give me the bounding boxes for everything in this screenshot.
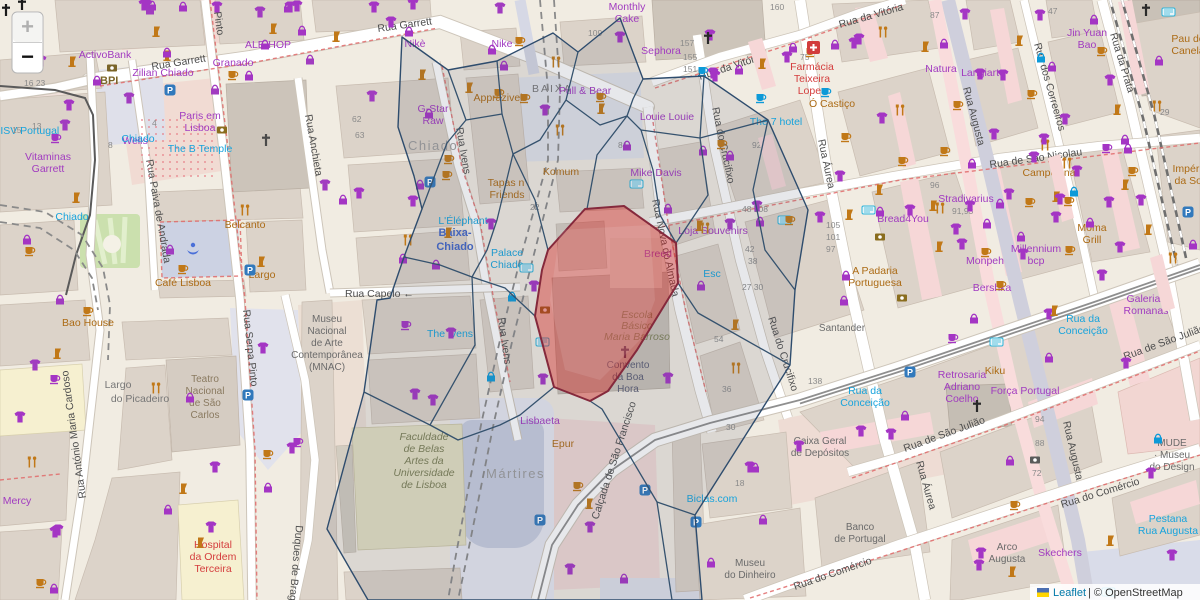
svg-text:Arco: Arco [997,542,1018,553]
svg-text:Rua da: Rua da [1066,313,1100,325]
svg-text:Museu: Museu [735,558,765,569]
svg-text:151: 151 [683,64,697,74]
svg-text:47: 47 [1048,6,1058,16]
svg-text:Augusta: Augusta [989,554,1026,565]
svg-text:Kiku: Kiku [985,365,1006,377]
svg-text:Lisboa: Lisboa [185,122,216,134]
svg-text:97: 97 [826,244,836,254]
svg-text:155: 155 [683,52,697,62]
svg-text:Bread4You: Bread4You [877,213,929,225]
svg-text:Chiado: Chiado [55,211,88,223]
svg-text:Nacional: Nacional [186,386,225,397]
svg-text:da Sor: da Sor [1175,175,1200,187]
svg-text:· Museu: · Museu [1154,450,1190,461]
svg-text:Carlos: Carlos [191,410,220,421]
svg-text:4: 4 [152,118,157,128]
svg-text:72: 72 [1032,468,1042,478]
svg-text:Granado: Granado [213,57,254,69]
svg-text:CISV Portugal: CISV Portugal [0,125,59,137]
svg-text:Belcanto: Belcanto [225,219,266,231]
svg-text:da Ordem: da Ordem [190,551,237,563]
svg-text:Chiado: Chiado [121,133,154,145]
svg-text:Bao: Bao [1078,39,1097,51]
svg-text:29: 29 [1160,107,1170,117]
svg-text:BPI: BPI [100,75,118,87]
svg-text:Teixeira: Teixeira [794,73,830,85]
svg-text:Mercy: Mercy [3,495,32,507]
svg-text:Portuguesa: Portuguesa [848,277,902,289]
svg-text:Farmácia: Farmácia [790,61,834,73]
svg-text:do Picadeiro: do Picadeiro [111,393,170,405]
svg-text:Natura: Natura [925,63,957,75]
svg-text:101: 101 [826,232,840,242]
svg-text:8: 8 [108,140,113,150]
svg-text:Rua da: Rua da [848,385,882,397]
svg-text:Canela: Canela [1171,45,1200,57]
svg-text:Conceição: Conceição [1058,325,1108,337]
svg-text:Adriano: Adriano [944,381,980,393]
svg-text:88: 88 [1035,438,1045,448]
svg-text:Pau de: Pau de [1171,33,1200,45]
svg-text:Jin Yuan: Jin Yuan [1067,27,1107,39]
svg-text:−: − [21,44,34,69]
svg-text:ActivoBank: ActivoBank [79,49,132,61]
svg-text:Pestana: Pestana [1149,513,1188,525]
svg-text:Contemporânea: Contemporânea [291,350,363,361]
svg-text:do Design: do Design [1149,462,1194,473]
svg-text:138: 138 [808,376,822,386]
svg-text:de Portugal: de Portugal [834,534,885,545]
svg-text:Leaflet: Leaflet [1053,587,1086,599]
svg-text:63: 63 [355,130,365,140]
svg-text:Vitaminas: Vitaminas [25,151,71,163]
svg-text:| © OpenStreetMap: | © OpenStreetMap [1088,587,1183,599]
svg-text:16 23: 16 23 [24,78,46,88]
svg-text:18: 18 [735,478,745,488]
svg-text:15: 15 [12,125,22,135]
svg-text:160: 160 [770,2,784,12]
svg-text:Monthly: Monthly [609,1,647,13]
svg-text:Café Lisboa: Café Lisboa [155,277,211,289]
svg-text:Romanas: Romanas [1124,305,1169,317]
svg-text:Santander: Santander [819,323,866,334]
svg-text:Garrett: Garrett [32,163,65,175]
svg-text:Skechers: Skechers [1038,547,1082,559]
svg-text:Museu: Museu [312,314,342,325]
svg-text:157: 157 [680,38,694,48]
svg-text:62: 62 [352,114,362,124]
svg-text:94: 94 [1035,414,1045,424]
svg-text:Campesina: Campesina [1022,167,1075,179]
svg-text:Rua Augusta: Rua Augusta [1138,525,1198,537]
svg-text:96: 96 [930,180,940,190]
svg-text:Banco: Banco [846,522,875,533]
svg-text:Bao House: Bao House [62,317,114,329]
svg-text:+: + [21,14,34,39]
svg-text:Impéria: Impéria [1172,163,1200,175]
svg-text:Teatro: Teatro [191,374,219,385]
svg-text:Terceira: Terceira [194,563,232,575]
svg-text:87: 87 [930,10,940,20]
svg-text:Ó Castiço: Ó Castiço [809,97,855,110]
svg-text:Zilian Chiado: Zilian Chiado [132,67,193,79]
svg-text:Sephora: Sephora [641,45,681,57]
svg-text:bcp: bcp [1028,255,1045,267]
svg-text:Nacional: Nacional [308,326,347,337]
svg-text:Conceição: Conceição [840,397,890,409]
svg-text:do Dinheiro: do Dinheiro [724,570,776,581]
svg-text:Largo: Largo [105,379,132,391]
svg-text:de Arte: de Arte [311,338,343,349]
svg-text:105: 105 [826,220,840,230]
svg-text:Paris em: Paris em [179,110,221,122]
svg-text:(MNAC): (MNAC) [309,362,345,373]
svg-text:Força Portugal: Força Portugal [991,385,1060,397]
svg-text:A Padaria: A Padaria [852,265,898,277]
svg-text:13: 13 [32,121,42,131]
svg-text:Grill: Grill [1083,234,1102,246]
svg-text:Millennium: Millennium [1011,243,1061,255]
svg-text:The B Temple: The B Temple [168,143,233,155]
svg-text:Retrosaria: Retrosaria [938,369,987,381]
